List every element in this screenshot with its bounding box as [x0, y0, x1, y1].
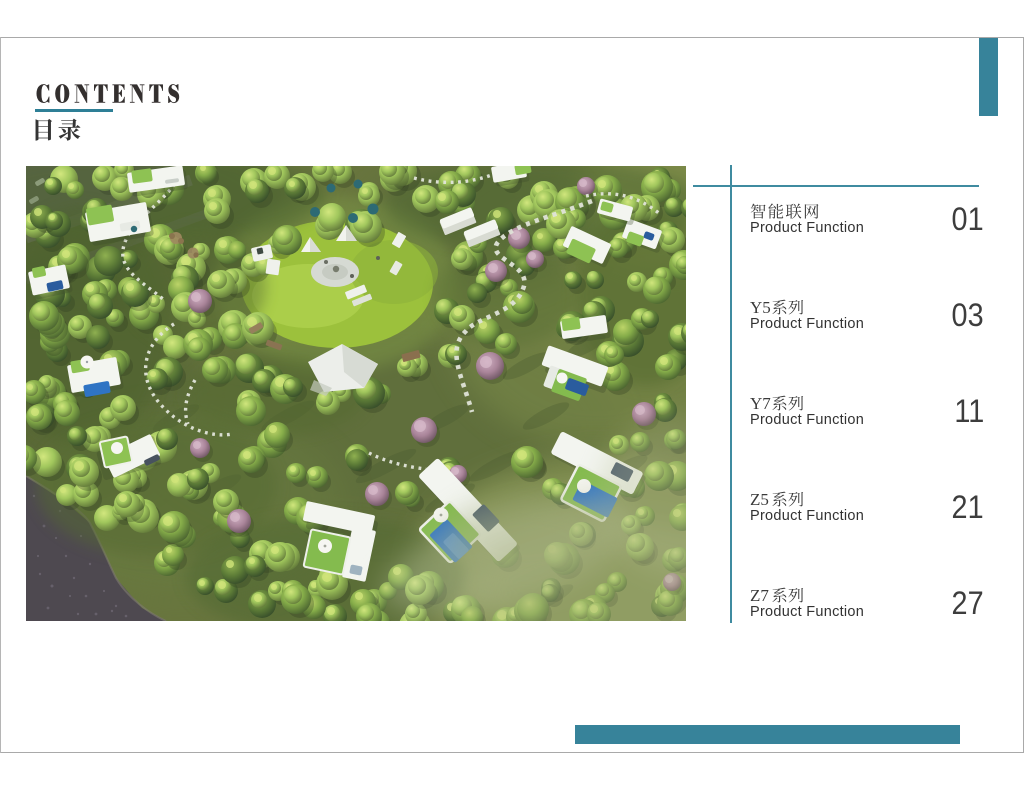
svg-text:Z7: Z7: [750, 586, 769, 605]
svg-text:Y7: Y7: [750, 394, 771, 413]
svg-text:Y5: Y5: [750, 298, 771, 317]
svg-text:Z5: Z5: [750, 490, 769, 509]
